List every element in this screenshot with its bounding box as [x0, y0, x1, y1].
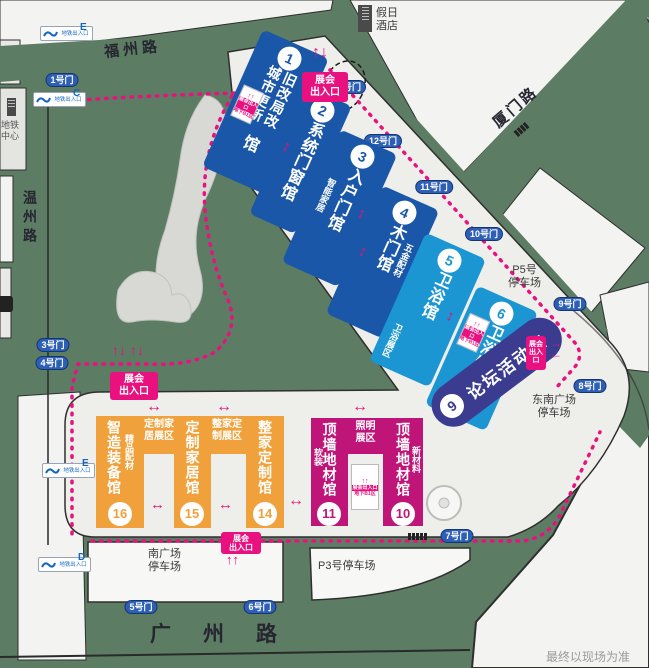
gate-9: 9号门 — [553, 297, 586, 311]
transit-stop-icon — [408, 533, 427, 540]
hall-9-number: 9 — [435, 389, 469, 423]
expo-entrance-north: 展会 出入口 — [302, 72, 348, 102]
gate-8: 8号门 — [573, 379, 606, 393]
hall-15-number: 15 — [180, 502, 204, 526]
flow-arrow: ↕ — [356, 242, 370, 261]
zone-label: 定制家 居展区 — [140, 419, 178, 443]
zone-label: 整家定 制展区 — [208, 419, 246, 443]
hall-14-number: 14 — [253, 502, 277, 526]
entrance-arrows: ↑↑ — [226, 552, 239, 567]
parking-p3-label: P3号停车场 — [318, 560, 375, 573]
metro-logo-icon — [36, 95, 51, 104]
orange-hall-complex: 智造装备馆 精品配材 16 定制家 居展区 定制家居馆 15 整家定 制展区 整… — [96, 416, 284, 532]
gate-5: 5号门 — [124, 600, 157, 614]
metro-logo-icon — [45, 466, 60, 475]
hall-11-subcategory: 软装 — [313, 448, 323, 466]
metro-exit-letter: E — [82, 458, 89, 469]
metro-exit-letter: C — [73, 88, 80, 99]
road-label-guangzhou: 广州路 — [150, 618, 309, 648]
hall-10-number: 10 — [391, 502, 415, 526]
flow-arrow: ↔ — [288, 492, 304, 510]
entrance-arrows: ↑↓ ↑↓ — [112, 342, 144, 358]
flow-arrow: ↔ — [146, 398, 162, 416]
magenta-hall-complex: 顶墙地材馆 软装 11 照明 展区 顶墙地材馆 新材料 10 ↑↑ 展会出入口 … — [311, 418, 423, 530]
metro-exit-letter: D — [78, 552, 85, 563]
metro-exit-letter: E — [80, 22, 87, 33]
entrance-arrows: →← — [550, 338, 562, 360]
metro-center-label: 地铁 中心 — [1, 120, 19, 142]
underground-entrance-marker: ↑↑ 展会出入口 地下B1区 — [351, 464, 379, 510]
hall-1-name-suffix: 馆 — [240, 128, 264, 156]
parking-south-label: 南广场 停车场 — [148, 548, 181, 574]
metro-logo-icon — [43, 29, 58, 38]
gate-7: 7号门 — [440, 529, 473, 543]
flow-arrow: ↔ — [150, 496, 165, 513]
parking-p5-label: P5号 停车场 — [508, 264, 541, 290]
flow-arrow: ↔ — [216, 398, 232, 416]
hotel-building-icon — [358, 5, 372, 32]
disclaimer-note: 最终以现场为准 — [546, 648, 630, 665]
gate-1: 1号门 — [45, 73, 78, 87]
flow-arrow: ↔ — [352, 398, 368, 416]
gate-4: 4号门 — [35, 356, 68, 370]
gate-10: 10号门 — [465, 227, 503, 241]
hall-10-subcategory: 新材料 — [411, 446, 421, 473]
zone-label: 照明 展区 — [348, 421, 383, 445]
building-icon — [0, 296, 13, 312]
venue-map: 福州路 厦门路 广州路 温州路 最终以现场为准 假日 酒店 地铁 中心 地铁出入… — [0, 0, 649, 668]
parking-southeast-label: 东南广场 停车场 — [532, 394, 576, 420]
flow-arrow: ↔ — [218, 496, 233, 513]
gate-3: 3号门 — [36, 338, 69, 352]
flow-arrow: ↕ — [280, 137, 294, 156]
gate-6: 6号门 — [243, 600, 276, 614]
road-label-wenzhou: 温州路 — [20, 190, 40, 247]
entrance-arrows: ↑↓ — [312, 44, 328, 62]
expo-entrance-south: 展会 出入口 — [221, 532, 261, 554]
metro-logo-icon — [41, 560, 56, 569]
flow-arrow: ↕ — [443, 307, 457, 326]
expo-entrance-west: 展会 出入口 — [110, 372, 158, 400]
expo-entrance-east: 展会 出入口 — [526, 336, 546, 370]
hall-11-number: 11 — [317, 502, 341, 526]
metro-center-icon — [7, 98, 16, 116]
gate-11: 11号门 — [415, 180, 453, 194]
hall-16-number: 16 — [108, 502, 132, 526]
hall-5-subcategory: 卫浴展区 — [380, 322, 404, 359]
hotel-label: 假日 酒店 — [376, 7, 398, 33]
